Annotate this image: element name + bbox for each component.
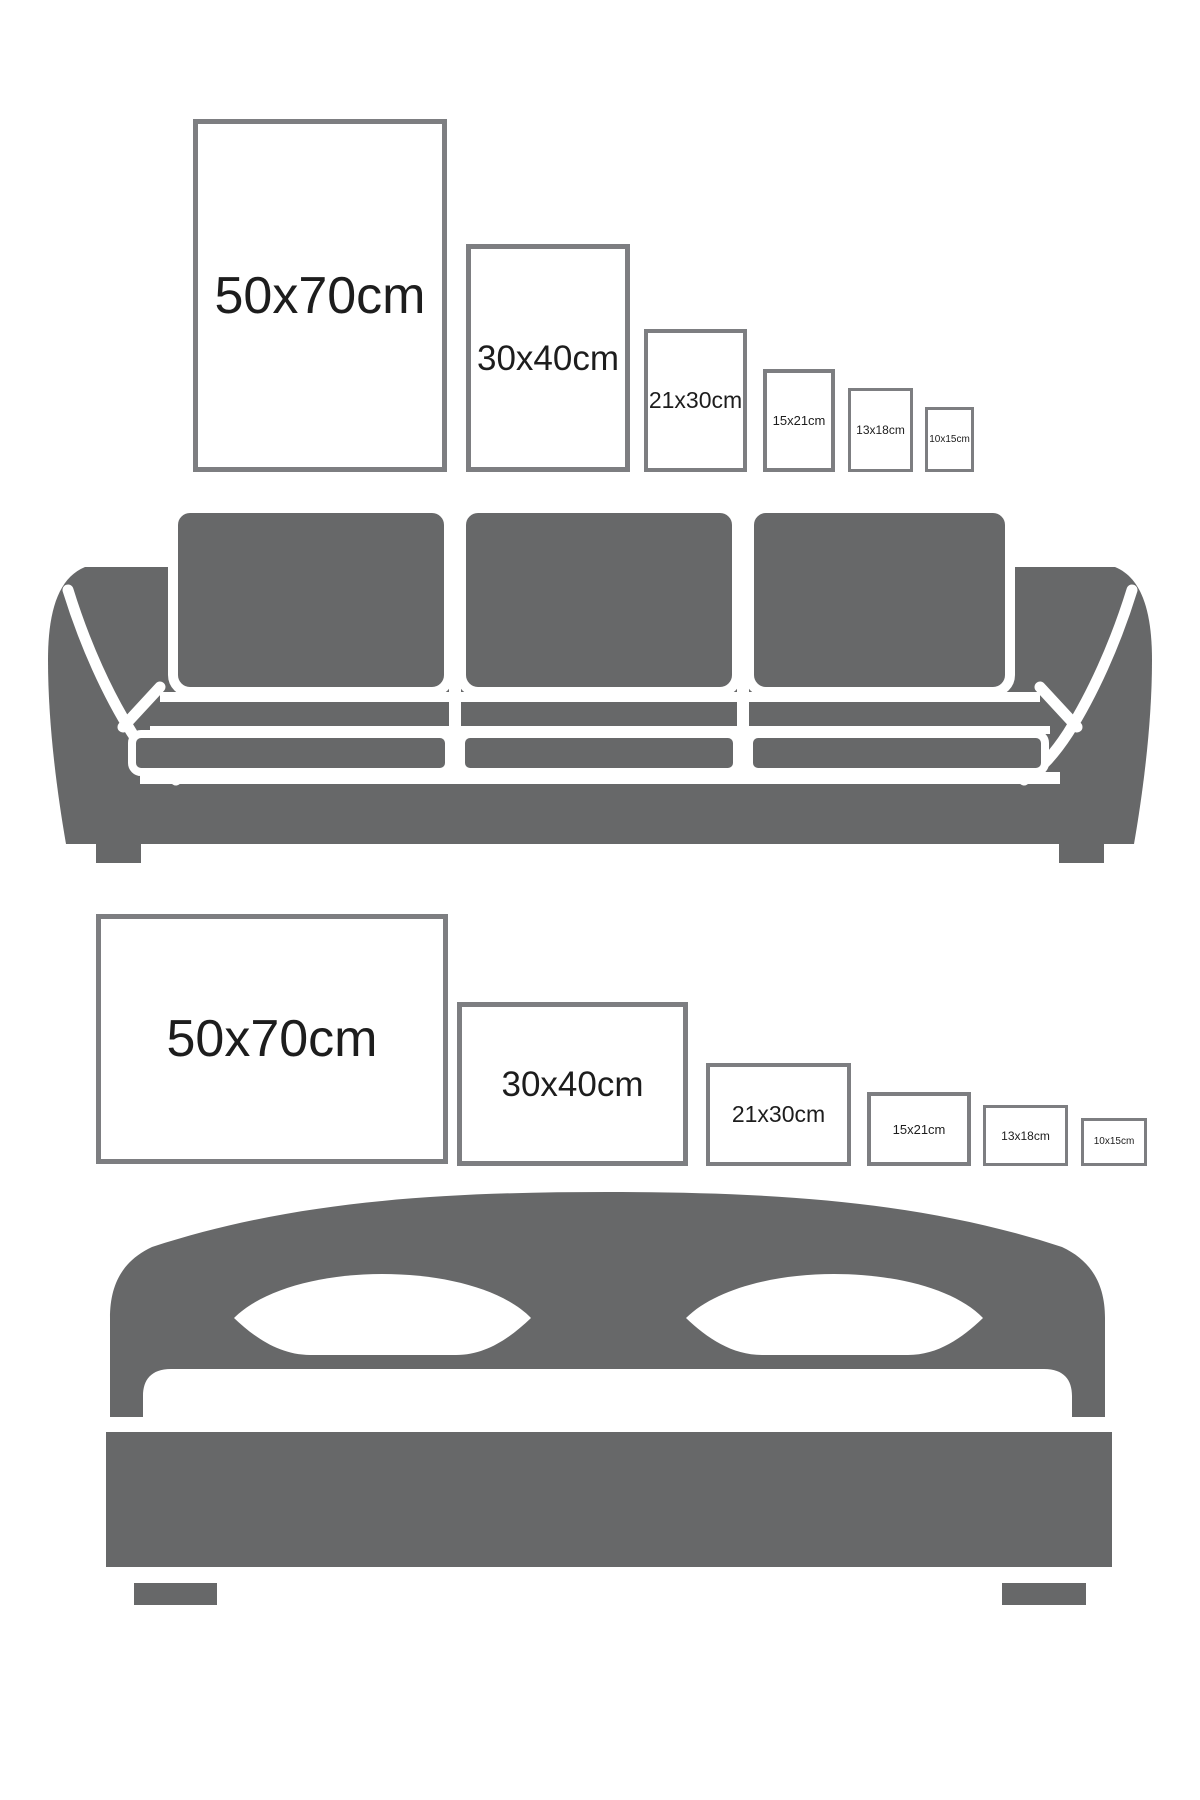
- sofa-foot: [96, 844, 141, 863]
- size-frame-sofa-30x40cm: 30x40cm: [466, 244, 630, 472]
- sofa-back-cushion: [749, 508, 1010, 692]
- sofa-foot: [1059, 844, 1104, 863]
- sofa-back-cushion: [173, 508, 449, 692]
- size-frame-sofa-21x30cm: 21x30cm: [644, 329, 747, 472]
- bed-foot: [1002, 1583, 1086, 1605]
- bed-foot: [134, 1583, 217, 1605]
- size-frame-bed-21x30cm: 21x30cm: [706, 1063, 851, 1166]
- sofa-seat-cushion: [461, 734, 737, 772]
- size-frame-label: 21x30cm: [649, 389, 742, 412]
- size-frame-label: 10x15cm: [929, 435, 970, 445]
- size-frame-bed-10x15cm: 10x15cm: [1081, 1118, 1147, 1166]
- size-frame-bed-30x40cm: 30x40cm: [457, 1002, 688, 1166]
- sofa-icon: [48, 502, 1152, 863]
- size-frame-label: 30x40cm: [501, 1067, 643, 1102]
- size-frame-bed-13x18cm: 13x18cm: [983, 1105, 1068, 1166]
- sofa-back-cushion: [461, 508, 737, 692]
- size-frame-sofa-10x15cm: 10x15cm: [925, 407, 974, 472]
- size-frame-label: 15x21cm: [773, 414, 826, 427]
- size-frame-label: 21x30cm: [732, 1103, 825, 1126]
- size-frame-bed-50x70cm: 50x70cm: [96, 914, 448, 1164]
- size-frame-sofa-50x70cm: 50x70cm: [193, 119, 447, 472]
- poster-size-guide-infographic: 50x70cm30x40cm21x30cm15x21cm13x18cm10x15…: [0, 0, 1200, 1800]
- size-frame-sofa-13x18cm: 13x18cm: [848, 388, 913, 472]
- size-frame-label: 13x18cm: [856, 424, 905, 436]
- bed-icon: [106, 1192, 1112, 1605]
- size-frame-label: 13x18cm: [1001, 1130, 1050, 1142]
- bed-mattress-base: [106, 1432, 1112, 1567]
- sofa-seat-cushion: [749, 734, 1045, 772]
- size-frame-sofa-15x21cm: 15x21cm: [763, 369, 835, 472]
- sofa-seat-cushion: [132, 734, 449, 772]
- size-frame-label: 50x70cm: [215, 270, 426, 322]
- size-frame-label: 10x15cm: [1094, 1137, 1135, 1147]
- size-frame-label: 15x21cm: [893, 1123, 946, 1136]
- size-frame-bed-15x21cm: 15x21cm: [867, 1092, 971, 1166]
- size-frame-label: 50x70cm: [167, 1013, 378, 1065]
- size-frame-label: 30x40cm: [477, 341, 619, 376]
